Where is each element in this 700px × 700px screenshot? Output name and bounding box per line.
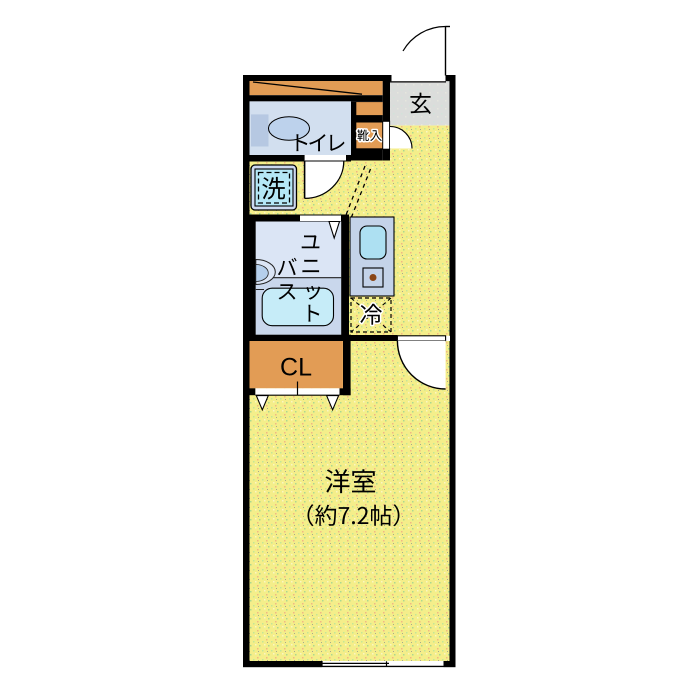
svg-text:CL: CL [280, 354, 312, 382]
